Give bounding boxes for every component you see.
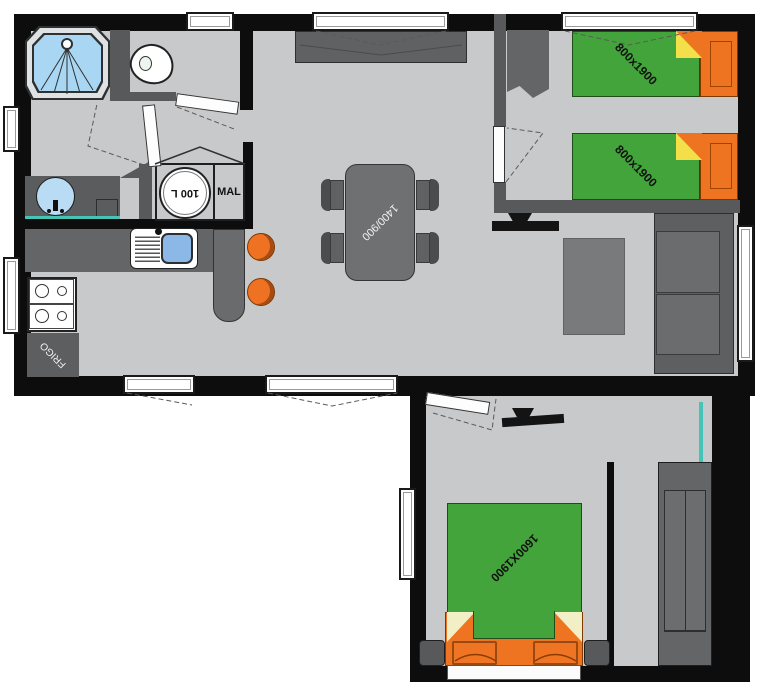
dining-chair-back [321,232,330,264]
wall-twinroom-bottom [494,200,740,213]
window-bottom-living [265,375,398,394]
sink-faucet-icon [155,228,162,235]
window-left-kitchen [3,257,20,334]
sideboard [295,31,467,63]
double-bed-mattress [447,503,582,613]
dining-chair-back [321,179,330,211]
shower-screen-strip [25,216,120,219]
nightstand-left [419,640,445,666]
nightstand-right [584,640,610,666]
double-bed-pillow-right [533,641,578,665]
utility-closet-divider [213,163,215,221]
double-bed-footboard [447,665,581,680]
dining-chair [416,180,430,210]
tap-handle-left-icon [47,209,51,213]
wall-livingroom-twinroom-upper [494,14,506,127]
window-right-sofa [737,225,754,362]
dining-chair [330,180,344,210]
bar-stool-1 [247,233,275,261]
sink-basin [161,233,193,264]
fridge [27,333,79,377]
double-bed-blanket-tongue [473,611,555,639]
wardrobe-shelf [664,630,706,631]
bar-stool-2 [247,278,275,306]
window-top-living [312,12,449,31]
wall-wc-right [240,14,253,110]
dining-chair [416,233,430,263]
dining-table [345,164,415,281]
basin-tap-icon [53,200,58,211]
tv-living-room [492,221,559,231]
window-bottom-small [123,375,195,394]
tap-handle-right-icon [60,209,64,213]
burner-icon [35,284,49,298]
wall-shower-wc [110,30,130,101]
double-bed-pillow-left [452,641,497,665]
twin-bed-1-pillow [710,41,732,87]
wall-wing-divider [607,462,614,667]
dining-chair-back [430,179,439,211]
boiler-inner-ring [163,171,207,215]
window-left-bathroom [3,106,20,152]
wall-wc-bottom [130,92,176,101]
wardrobe-divider [685,490,686,632]
burner-icon [57,286,67,296]
dining-chair [330,233,344,263]
mirror-strip [699,402,703,462]
floor-plan: 100 L MAL FRIGO 1400/900 800x1900 800 [0,0,768,692]
sink-drainboard [135,234,160,264]
sofa-cushion [656,294,720,355]
shower-head-icon [61,38,73,50]
window-wing-left [399,488,416,580]
twinroom-door [493,126,505,183]
burner-icon [35,309,49,323]
toilet-flush-icon [139,56,152,71]
dining-chair-back [430,232,439,264]
twinroom-wardrobe [507,30,549,79]
window-top-twinroom [561,12,698,31]
breakfast-bar [213,229,245,322]
burner-icon [57,311,67,321]
twin-bed-2-pillow [710,143,732,189]
sofa-cushion [656,231,720,293]
coffee-table [563,238,625,335]
window-top-small [186,12,234,31]
wing-wall-right [712,396,750,682]
